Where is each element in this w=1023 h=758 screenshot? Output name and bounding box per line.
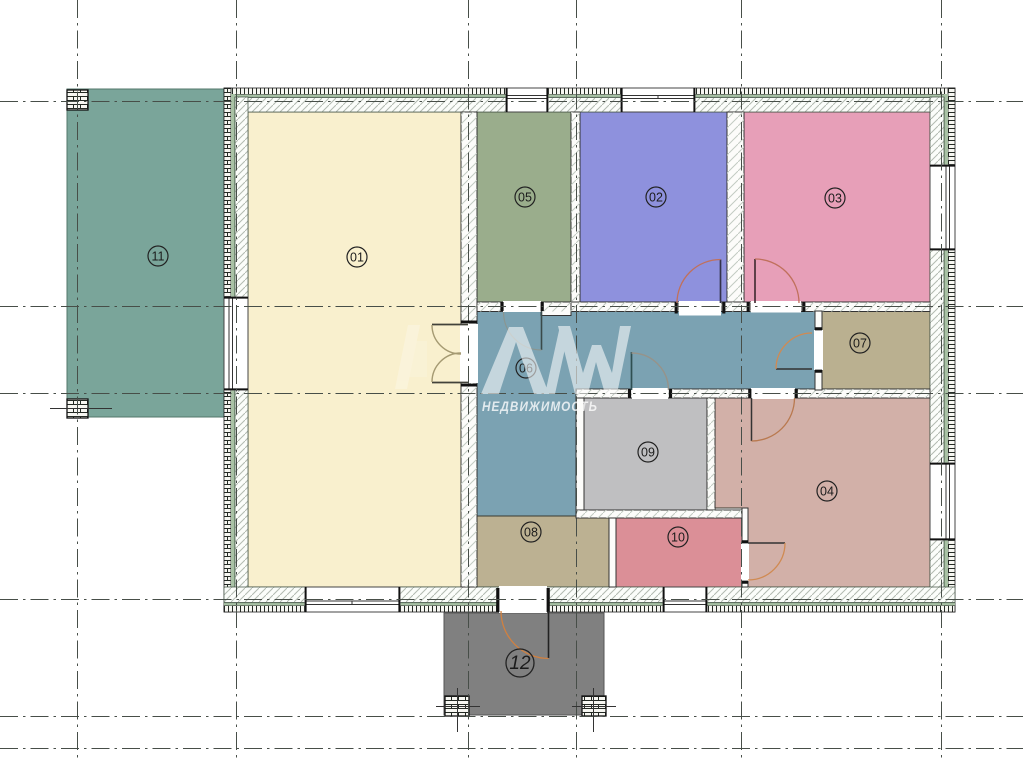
svg-text:03: 03 bbox=[828, 192, 842, 206]
svg-text:04: 04 bbox=[820, 485, 834, 499]
svg-text:10: 10 bbox=[671, 531, 685, 545]
svg-text:НЕДВИЖИМОСТЬ: НЕДВИЖИМОСТЬ bbox=[482, 399, 598, 414]
svg-text:02: 02 bbox=[649, 191, 663, 205]
svg-text:12: 12 bbox=[509, 653, 531, 674]
svg-text:11: 11 bbox=[152, 250, 165, 264]
svg-text:01: 01 bbox=[350, 251, 364, 265]
svg-text:05: 05 bbox=[518, 191, 532, 205]
svg-text:09: 09 bbox=[641, 446, 655, 460]
svg-text:07: 07 bbox=[853, 337, 867, 351]
svg-text:08: 08 bbox=[524, 526, 538, 540]
